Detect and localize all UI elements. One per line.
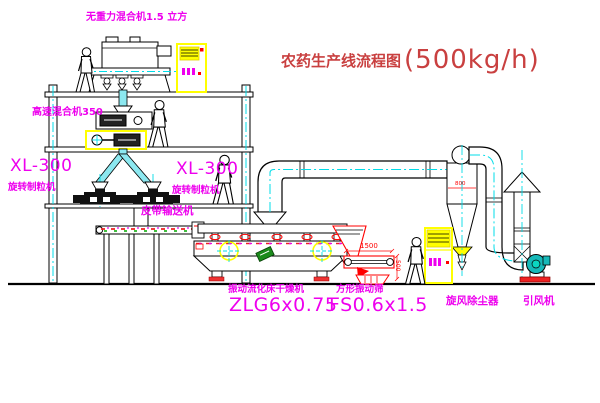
fluid-bed-dryer <box>192 222 352 281</box>
granulator-left <box>73 174 127 207</box>
title-capacity: (500kg/h) <box>404 45 540 75</box>
belt-conveyor <box>96 226 200 284</box>
label-fan: 引风机 <box>523 296 555 307</box>
label-screen-model: FS0.6x1.5 <box>329 296 428 315</box>
control-cabinet-top <box>177 44 206 92</box>
label-granulator-right-model: XL-300 <box>176 161 238 178</box>
label-dryer-model: ZLG6x0.75 <box>229 296 337 315</box>
label-cyclone: 旋风除尘器 <box>446 296 499 307</box>
control-cabinet-bottom <box>425 228 452 283</box>
person-figure <box>76 48 95 92</box>
title-text: 农药生产线流程图 <box>281 50 401 75</box>
diagram-title: 农药生产线流程图 (500kg/h) <box>281 45 540 75</box>
dimension-screen-width: 1500 <box>360 243 378 250</box>
cad-flow-diagram: 农药生产线流程图 (500kg/h) 无重力混合机1.5 立方 高速混合机350… <box>0 0 600 403</box>
person-figure <box>406 237 425 284</box>
label-belt-conveyor: 皮带输送机 <box>141 206 194 217</box>
label-granulator-left-name: 旋转制粒机 <box>8 183 56 193</box>
label-granulator-right-name: 旋转制粒机 <box>172 186 220 196</box>
label-high-speed-mixer: 高速混合机350 <box>32 108 103 118</box>
label-gravity-mixer: 无重力混合机1.5 立方 <box>86 13 187 23</box>
dimension-cyclone: 800 <box>455 182 466 188</box>
label-granulator-left-model: XL-300 <box>10 158 72 175</box>
dimension-screen-height: 500 <box>394 260 400 271</box>
exhaust-elbow-duct <box>254 161 447 224</box>
y-splitter-pipe <box>95 154 152 183</box>
person-figure <box>149 100 168 147</box>
